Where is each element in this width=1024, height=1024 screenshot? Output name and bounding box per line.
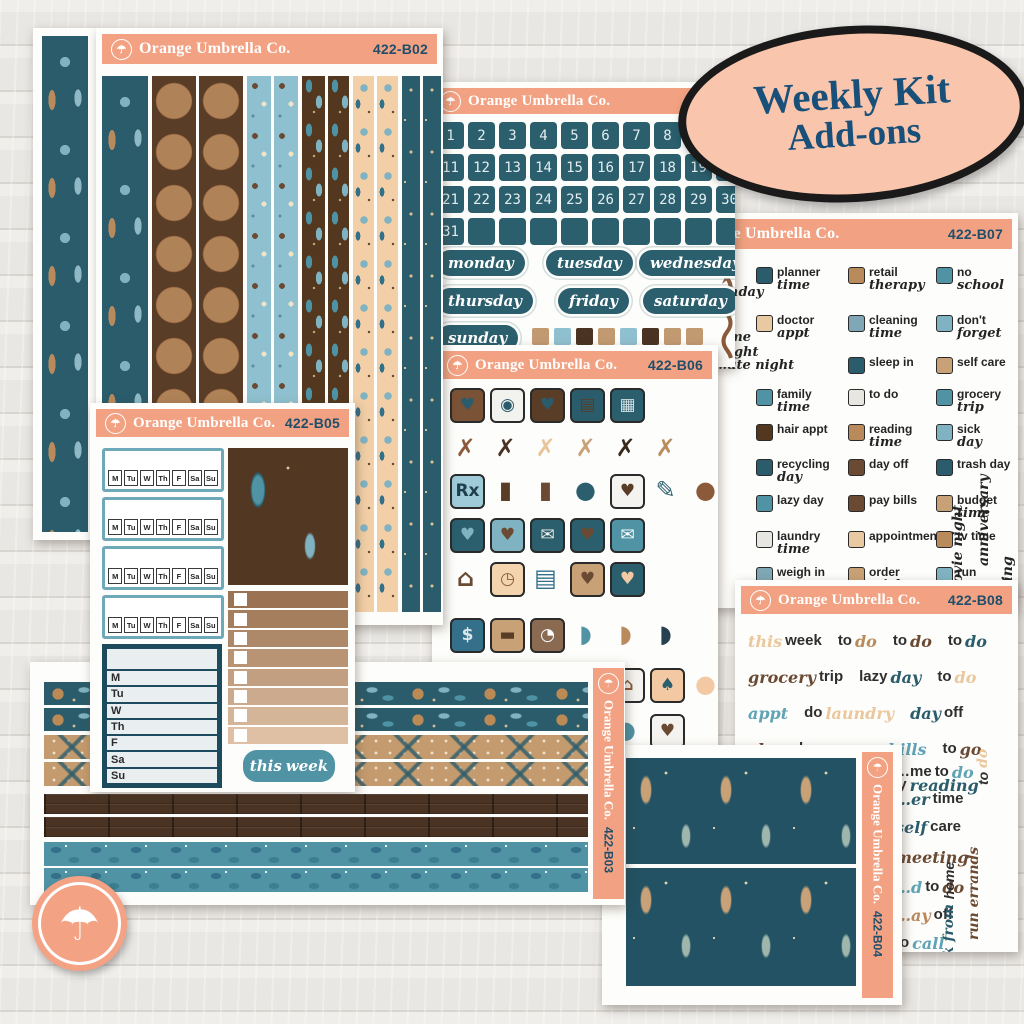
checklist-checkbox	[234, 690, 247, 703]
word-line: day	[777, 471, 830, 485]
habit-tracker-sticker: MTuWThFSaSu	[102, 497, 224, 541]
word-sticker: self care	[936, 356, 1006, 374]
vertical-word-sticker: work from home	[941, 860, 957, 952]
word-line: no	[957, 266, 1004, 279]
word-line: appt	[777, 327, 814, 341]
tracker-day-box: W	[140, 519, 154, 535]
word-segment: time	[933, 790, 964, 809]
word-line: time	[777, 279, 820, 293]
weekly-row: M	[107, 671, 217, 685]
fork-spoon-icon: ✗	[610, 432, 641, 463]
checklist-checkbox	[234, 729, 247, 742]
sneaker-icon: ◗	[610, 618, 641, 649]
word-sticker: dolaundry	[804, 704, 894, 723]
brand-name: Orange Umbrella Co.	[601, 700, 617, 820]
checklist-row	[228, 669, 348, 686]
word-label: retailtherapy	[869, 266, 925, 292]
brand-name: Orange Umbrella Co.	[778, 592, 920, 609]
tracker-day-box: M	[108, 519, 122, 535]
shopping-bag-icon: ♥	[450, 388, 485, 423]
word-segment: do	[955, 668, 977, 687]
color-swatch-sticker	[532, 328, 549, 345]
word-segment: home	[941, 862, 957, 899]
word-segment: lazy	[859, 668, 887, 687]
tracker-day-box: F	[172, 568, 186, 584]
word-sticker: todo	[937, 668, 976, 687]
word-segment: do	[965, 632, 987, 651]
planner-icon	[756, 267, 773, 284]
trash-can-icon	[936, 459, 953, 476]
sheet-code: 422-B02	[373, 41, 428, 57]
grocery-cart-icon	[936, 389, 953, 406]
tracker-day-box: M	[108, 568, 122, 584]
clipboard-icon	[848, 389, 865, 406]
exclamation-icon	[936, 315, 953, 332]
folder-icon: ♥	[490, 518, 525, 553]
word-segment: grocery	[748, 668, 816, 687]
word-segment: work from	[941, 899, 957, 952]
tracker-day-box: Su	[204, 617, 218, 633]
logo-ring	[38, 882, 121, 965]
word-row: selfcare	[895, 818, 961, 837]
word-line: retail	[869, 266, 925, 279]
date-number-sticker: 4	[530, 122, 557, 149]
date-number-sticker: 22	[468, 186, 495, 213]
weekly-row: Sa	[107, 752, 217, 766]
word-sticker: pay bills	[848, 494, 917, 512]
word-sticker: hair appt	[756, 423, 828, 441]
vertical-word-sticker: anniversary	[976, 388, 992, 566]
briefcase-icon	[848, 459, 865, 476]
word-label: hair appt	[777, 423, 828, 436]
tracker-day-box: Su	[204, 519, 218, 535]
vertical-word-sticker: run errands	[966, 805, 982, 940]
credit-card-icon: ▬	[490, 618, 525, 653]
weekly-row: Su	[107, 769, 217, 783]
sheet-code: 422-B04	[871, 911, 885, 957]
calculator-icon: ▦	[610, 388, 645, 423]
word-segment: to	[975, 768, 991, 785]
word-sticker: sleep in	[848, 356, 914, 374]
word-line: don't	[957, 314, 1001, 327]
word-sticker: recyclingday	[756, 458, 830, 484]
fork-spoon-icon: ✗	[530, 432, 561, 463]
date-number-sticker: 13	[499, 154, 526, 181]
envelope-heart-icon: ✉	[610, 518, 645, 553]
word-line: order	[869, 566, 927, 579]
word-segment: trip	[819, 668, 843, 687]
date-number-sticker: 30	[716, 186, 735, 213]
tracker-day-box: Sa	[188, 617, 202, 633]
checklist-row	[228, 591, 348, 608]
couch-icon	[756, 495, 773, 512]
word-sticker: trash day	[936, 458, 1010, 476]
date-number-sticker: 12	[468, 154, 495, 181]
color-swatch-sticker	[554, 328, 571, 345]
word-segment: to	[838, 632, 852, 651]
money-icon	[848, 267, 865, 284]
word-label: cleaningtime	[869, 314, 918, 340]
checklist-checkbox	[234, 651, 247, 664]
books-icon	[848, 424, 865, 441]
word-label: laundrytime	[777, 530, 820, 556]
tracker-day-box: Sa	[188, 568, 202, 584]
alarm-clock-icon	[848, 531, 865, 548]
washing-machine-icon	[756, 531, 773, 548]
word-sticker: readingtime	[848, 423, 912, 449]
word-segment: day	[890, 668, 921, 687]
date-number-sticker: 7	[623, 122, 650, 149]
word-line: weigh in	[777, 566, 825, 579]
date-number-sticker: 14	[530, 154, 557, 181]
fork-spoon-icon: ✗	[570, 432, 601, 463]
tracker-day-box: W	[140, 617, 154, 633]
checklist-row	[228, 727, 348, 744]
color-swatch-sticker	[576, 328, 593, 345]
word-label: noschool	[957, 266, 1004, 292]
tracker-day-box: Su	[204, 568, 218, 584]
color-swatch-sticker	[686, 328, 703, 345]
sheet-header-vertical: ☂ Orange Umbrella Co. 422-B04	[862, 752, 893, 998]
sleep-mask-icon	[936, 357, 953, 374]
product-photo: ☂ Orange Umbrella Co. 422-B02 ☂ Orange U…	[0, 0, 1024, 1024]
wallet-icon	[848, 495, 865, 512]
word-sticker: laundrytime	[756, 530, 820, 556]
brand-name: Orange Umbrella Co.	[139, 40, 291, 58]
word-segment: to	[937, 668, 951, 687]
fork-spoon-icon: ✗	[650, 432, 681, 463]
word-segment: do	[855, 632, 877, 651]
word-sticker: tocall	[895, 934, 944, 952]
tracker-day-box: Tu	[124, 568, 138, 584]
word-sticker: meeting	[895, 848, 969, 867]
stethoscope-icon	[756, 315, 773, 332]
word-segment: to	[948, 632, 962, 651]
scale-icon: ◔	[530, 618, 565, 653]
checklist-checkbox	[234, 593, 247, 606]
weekday-sticker: monday	[437, 250, 525, 276]
coffee-cup-icon: ♥	[610, 474, 645, 509]
tracker-days: MTuWThFSaSu	[108, 617, 218, 633]
weekday-sticker: friday	[558, 288, 629, 314]
word-segment: day	[910, 704, 941, 723]
tracker-day-box: Sa	[188, 519, 202, 535]
tracker-day-box: Sa	[188, 470, 202, 486]
word-row: meeting	[895, 848, 969, 867]
weekly-row: F	[107, 736, 217, 750]
word-line: recycling	[777, 458, 830, 471]
word-line: time	[777, 543, 820, 557]
fork-spoon-icon: ✗	[450, 432, 481, 463]
word-label: weigh in	[777, 566, 825, 579]
trash-can-icon: ▮	[490, 474, 521, 505]
washi-strip	[402, 76, 420, 612]
brand-name: Orange Umbrella Co.	[870, 784, 886, 904]
word-sticker: plannertime	[756, 266, 820, 292]
word-label: familytime	[777, 388, 812, 414]
umbrella-icon: ☂	[598, 673, 619, 694]
word-segment: call	[912, 934, 944, 952]
sheet-header: ☂ Orange Umbrella Co. 422-B06	[438, 351, 712, 379]
word-sticker: lazy day	[756, 494, 824, 512]
sheet-header: ☂ Orange Umbrella Co. 422-B02	[102, 34, 437, 64]
date-number-sticker: 27	[623, 186, 650, 213]
word-sticker: selfcare	[895, 818, 961, 837]
blank-date-sticker	[654, 218, 681, 245]
tracker-day-box: F	[172, 519, 186, 535]
word-label: recyclingday	[777, 458, 830, 484]
clock-icon	[756, 389, 773, 406]
weekly-row-blank	[107, 649, 217, 669]
word-label: self care	[957, 356, 1006, 369]
color-swatch-sticker	[598, 328, 615, 345]
washi-strip	[42, 36, 88, 532]
checklist-checkbox	[234, 632, 247, 645]
word-line: to do	[869, 388, 898, 401]
word-segment: to	[893, 632, 907, 651]
tracker-day-box: F	[172, 470, 186, 486]
word-line: doctor	[777, 314, 814, 327]
washi-strip-sheet	[33, 28, 97, 540]
sheet-code: 422-B03	[602, 827, 616, 873]
blanket-icon	[848, 357, 865, 374]
tracker-day-box: F	[172, 617, 186, 633]
word-sticker: grocerytrip	[748, 668, 843, 687]
blank-date-sticker	[499, 218, 526, 245]
word-line: lazy day	[777, 494, 824, 507]
word-label: pay bills	[869, 494, 917, 507]
date-number-sticker: 28	[654, 186, 681, 213]
sneaker-icon: ◗	[650, 618, 681, 649]
laptop-icon: ♥	[450, 518, 485, 553]
stethoscope-icon: ♥	[570, 562, 605, 597]
umbrella-icon: ☂	[111, 39, 132, 60]
tracker-days: MTuWThFSaSu	[108, 519, 218, 535]
weekly-row: Th	[107, 720, 217, 734]
sheet-code: 422-B06	[648, 357, 703, 373]
checklist-checkbox	[234, 671, 247, 684]
word-sticker: todo	[948, 632, 987, 651]
date-number-sticker: 16	[592, 154, 619, 181]
word-line: pay bills	[869, 494, 917, 507]
brand-name: Orange Umbrella Co.	[475, 357, 617, 374]
recycle-icon	[756, 459, 773, 476]
date-number-sticker: 6	[592, 122, 619, 149]
umbrella-icon: ☂	[750, 590, 771, 611]
sheet-code: 422-B05	[285, 415, 340, 431]
house-icon: ⌂	[450, 562, 481, 593]
tracker-day-box: Th	[156, 470, 170, 486]
word-line: appointment	[869, 530, 941, 543]
word-sticker: doctorappt	[756, 314, 814, 340]
fork-spoon-icon: ✗	[490, 432, 521, 463]
checklist-row	[228, 649, 348, 666]
balloons-icon: ●	[690, 668, 718, 699]
word-segment: appt	[748, 704, 788, 723]
rx-bottle-icon: Rx	[450, 474, 485, 509]
tracker-days: MTuWThFSaSu	[108, 470, 218, 486]
word-row: tocall	[895, 934, 944, 952]
word-segment: errands	[966, 847, 982, 908]
sneaker-icon: ◗	[570, 618, 601, 649]
washi-strip	[377, 76, 398, 612]
pattern-panel-sticker	[626, 758, 856, 864]
tracker-day-box: Su	[204, 470, 218, 486]
word-line: family	[777, 388, 812, 401]
nail-polish-icon: ▮	[530, 474, 561, 505]
chocolate-bar-icon: ▤	[570, 388, 605, 423]
tracker-day-box: Tu	[124, 470, 138, 486]
word-line: forget	[957, 327, 1001, 341]
phone-heart-icon: ♥	[650, 714, 685, 749]
word-label: day off	[869, 458, 908, 471]
word-segment: this	[748, 632, 782, 651]
washi-strip	[353, 76, 374, 612]
checklist-row	[228, 610, 348, 627]
umbrella-icon: ☂	[440, 91, 461, 112]
tracker-day-box: M	[108, 470, 122, 486]
word-sticker: day off	[848, 458, 908, 476]
word-segment: meeting	[895, 848, 969, 867]
sheet-422-B04: ☂ Orange Umbrella Co. 422-B04	[602, 745, 902, 1005]
sheet-header-vertical: ☂ Orange Umbrella Co. 422-B03	[593, 668, 624, 899]
washi-strip	[44, 794, 588, 814]
ornament-panel-sticker	[228, 448, 348, 585]
habit-tracker-sticker: MTuWThFSaSu	[102, 595, 224, 639]
date-number-sticker: 15	[561, 154, 588, 181]
sheet-422-B05: ☂ Orange Umbrella Co. 422-B05 MTuWThFSaS…	[90, 403, 355, 792]
lightbulb-icon: ●	[570, 474, 601, 505]
money-icon: $	[450, 618, 485, 653]
washi-strip	[423, 76, 441, 612]
word-line: reading	[869, 423, 912, 436]
weekday-sticker: tuesday	[546, 250, 633, 276]
word-line: time	[777, 401, 812, 415]
badge-line2: Add-ons	[786, 112, 922, 158]
weekly-row: Tu	[107, 687, 217, 701]
spray-bottle-icon	[848, 315, 865, 332]
planner-notebook-icon: ♥	[530, 388, 565, 423]
color-swatch-sticker	[620, 328, 637, 345]
word-sticker: …metodo	[895, 763, 974, 782]
balloons-icon: ●	[690, 474, 718, 505]
word-line: hair appt	[777, 423, 828, 436]
pencil-icon: ✎	[650, 474, 681, 505]
weekly-row: W	[107, 704, 217, 718]
tracker-day-box: Th	[156, 568, 170, 584]
date-number-sticker: 2	[468, 122, 495, 149]
blank-date-sticker	[685, 218, 712, 245]
tracker-day-box: Tu	[124, 519, 138, 535]
checklist-row	[228, 707, 348, 724]
this-week-word: week	[286, 757, 328, 775]
hair-dryer-icon	[756, 424, 773, 441]
date-number-sticker: 23	[499, 186, 526, 213]
color-swatch-sticker	[664, 328, 681, 345]
this-week-word: this	[250, 757, 282, 775]
date-number-sticker: 5	[561, 122, 588, 149]
word-line: laundry	[777, 530, 820, 543]
checklist-checkbox	[234, 613, 247, 626]
date-number-sticker: 18	[654, 154, 681, 181]
washing-machine-icon: ◉	[490, 388, 525, 423]
word-sticker: don'tforget	[936, 314, 1001, 340]
tv-icon: ♥	[570, 518, 605, 553]
habit-tracker-sticker: MTuWThFSaSu	[102, 448, 224, 492]
word-sticker: …ertime	[895, 790, 963, 809]
this-week-sticker: this week	[243, 750, 335, 782]
washi-strip	[44, 817, 588, 837]
word-sticker: to do	[848, 388, 898, 406]
blank-date-sticker	[623, 218, 650, 245]
word-segment: do	[804, 704, 822, 723]
word-segment: to	[942, 740, 956, 759]
word-line: therapy	[869, 279, 925, 293]
checklist-row	[228, 688, 348, 705]
weekly-list-sticker: MTuWThFSaSu	[102, 644, 222, 788]
word-row: …ertime	[895, 790, 963, 809]
word-label: lazy day	[777, 494, 824, 507]
word-sticker: thisweek	[748, 632, 822, 651]
word-segment: run	[966, 907, 982, 940]
pattern-panel-sticker	[626, 868, 856, 986]
blank-date-sticker	[592, 218, 619, 245]
word-sticker: todo	[838, 632, 877, 651]
word-line: time	[869, 327, 918, 341]
washi-strip	[44, 842, 588, 866]
blank-date-sticker	[468, 218, 495, 245]
tracker-day-box: M	[108, 617, 122, 633]
word-sticker: noschool	[936, 266, 1004, 292]
word-sticker: dayoff	[910, 704, 963, 723]
alarm-clock-icon: ◷	[490, 562, 525, 597]
blank-date-sticker	[716, 218, 735, 245]
orange-umbrella-logo: ☂	[32, 876, 127, 971]
checklist-checkbox	[234, 709, 247, 722]
weekday-sticker: wednesday	[639, 250, 735, 276]
word-line: cleaning	[869, 314, 918, 327]
washi-strip	[44, 868, 588, 892]
blank-date-sticker	[561, 218, 588, 245]
word-segment: do	[910, 632, 932, 651]
brand-name: Orange Umbrella Co.	[468, 93, 610, 110]
weekday-sticker: thursday	[437, 288, 533, 314]
sheet-code: 422-B07	[948, 226, 1003, 242]
word-segment: to	[935, 763, 949, 782]
brand-name: Orange Umbrella Co.	[133, 415, 275, 432]
squiggle-arrow-icon	[719, 270, 735, 362]
tracker-days: MTuWThFSaSu	[108, 568, 218, 584]
word-label: to do	[869, 388, 898, 401]
word-label: readingtime	[869, 423, 912, 449]
weekday-sticker: saturday	[643, 288, 735, 314]
word-line: planner	[777, 266, 820, 279]
word-label: doctorappt	[777, 314, 814, 340]
word-sticker: familytime	[756, 388, 812, 414]
word-segment: do	[952, 763, 974, 782]
word-label: plannertime	[777, 266, 820, 292]
apple-icon	[936, 267, 953, 284]
date-number-sticker: 25	[561, 186, 588, 213]
word-line: time	[869, 436, 912, 450]
tracker-day-box: W	[140, 470, 154, 486]
word-segment: to	[925, 878, 939, 897]
word-line: day off	[869, 458, 908, 471]
potted-plant-icon: ♠	[650, 668, 685, 703]
tracker-day-box: Th	[156, 617, 170, 633]
sheet-code: 422-B08	[948, 592, 1003, 608]
date-number-sticker: 29	[685, 186, 712, 213]
